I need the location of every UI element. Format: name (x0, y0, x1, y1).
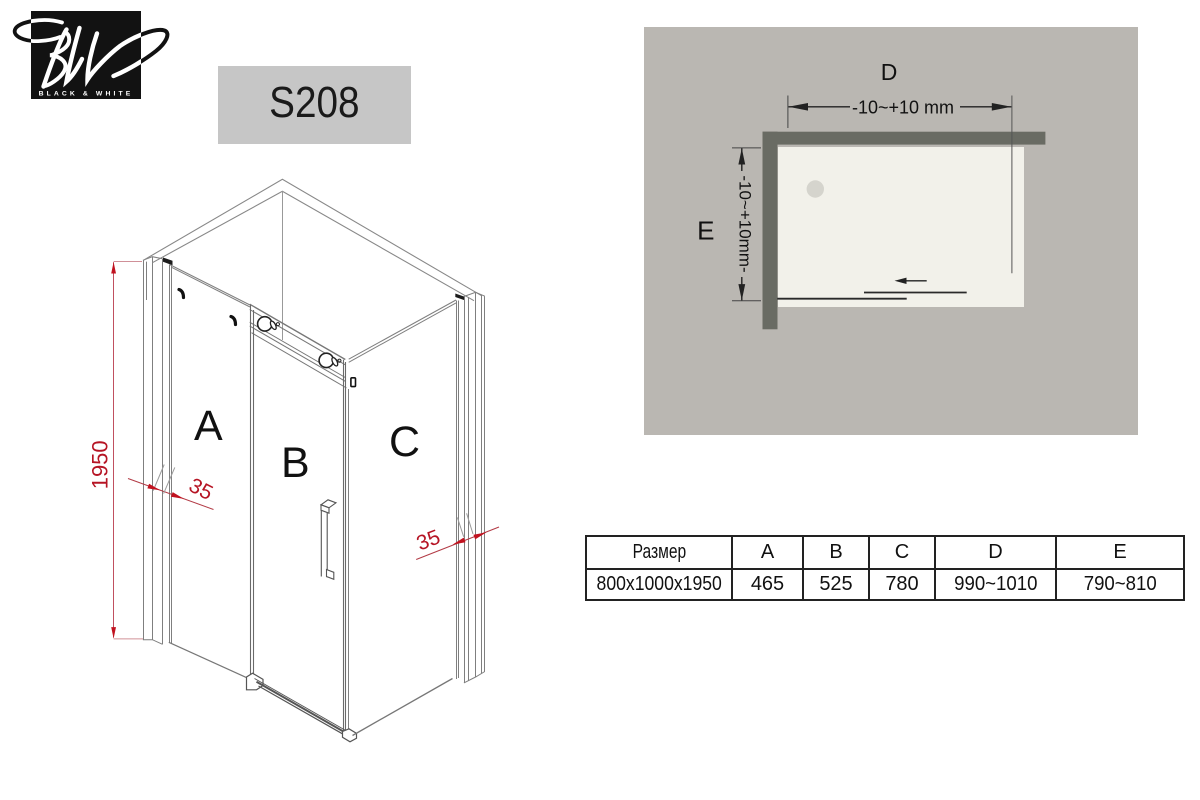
svg-text:1950: 1950 (88, 440, 113, 489)
svg-text:-10~+10 mm: -10~+10 mm (852, 97, 954, 117)
svg-text:A: A (194, 402, 223, 450)
svg-text:-10~+10mm-: -10~+10mm- (736, 175, 755, 272)
svg-text:E: E (697, 216, 714, 246)
svg-text:B: B (281, 439, 310, 487)
svg-text:35: 35 (185, 474, 216, 505)
svg-text:C: C (389, 418, 420, 466)
svg-text:D: D (881, 59, 898, 85)
